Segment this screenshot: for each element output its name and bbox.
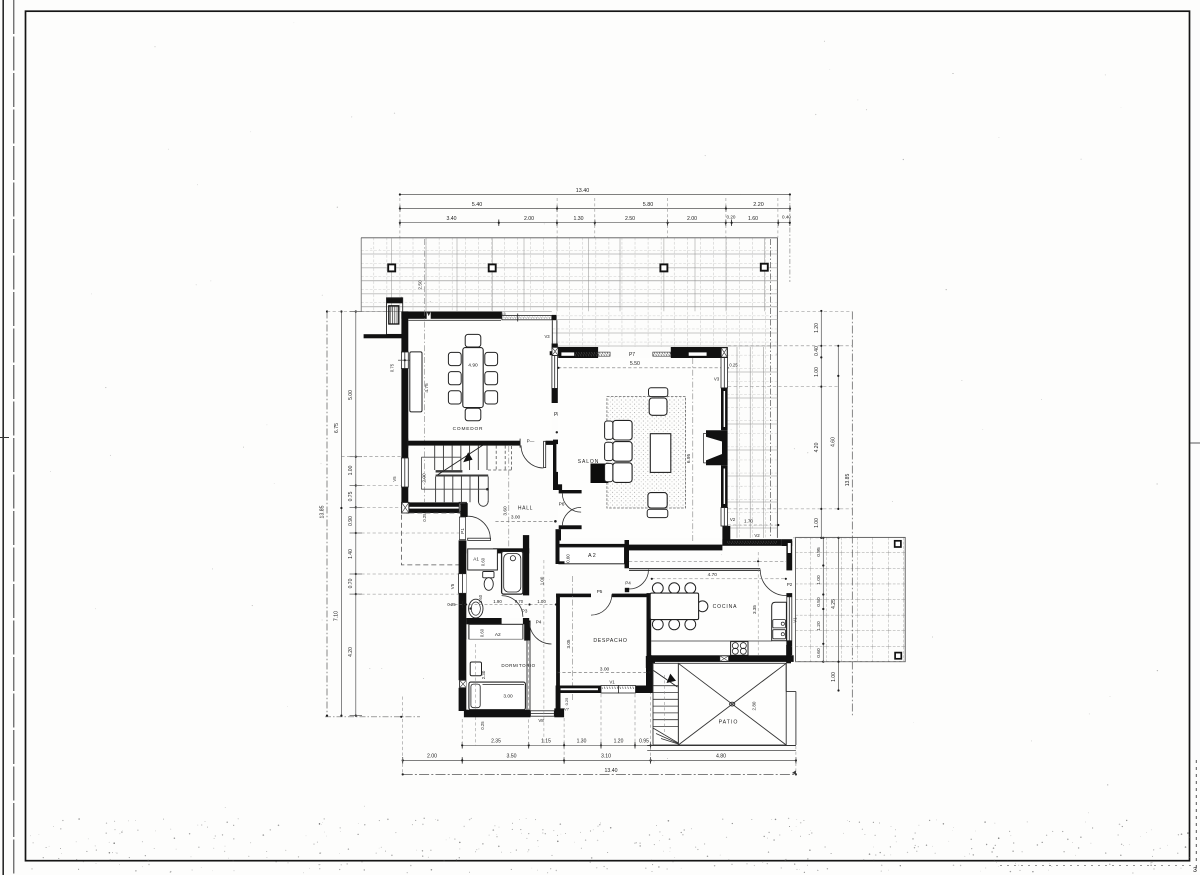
svg-text:13.40: 13.40 (576, 188, 590, 194)
svg-text:V8: V8 (538, 718, 544, 723)
svg-text:V1: V1 (609, 680, 615, 685)
svg-text:2.30: 2.30 (481, 670, 486, 679)
svg-text:4.90: 4.90 (468, 363, 478, 369)
svg-text:1.00: 1.00 (537, 599, 546, 604)
svg-text:0.95: 0.95 (816, 547, 822, 557)
svg-text:DESPACHO: DESPACHO (593, 638, 627, 644)
svg-text:2.00: 2.00 (687, 216, 697, 222)
svg-text:V3: V3 (544, 334, 550, 339)
svg-text:P5: P5 (597, 589, 603, 594)
svg-text:V2: V2 (730, 517, 736, 522)
svg-text:3.35: 3.35 (752, 605, 757, 614)
svg-text:4.75: 4.75 (424, 383, 430, 393)
svg-text:0.25: 0.25 (564, 697, 569, 706)
svg-text:0.75: 0.75 (348, 491, 354, 501)
svg-text:4.25: 4.25 (831, 599, 837, 609)
svg-text:6.75: 6.75 (334, 423, 340, 433)
svg-text:2.00: 2.00 (427, 754, 437, 760)
svg-text:4.20: 4.20 (814, 442, 820, 452)
svg-text:0.75: 0.75 (390, 363, 395, 372)
svg-text:A2: A2 (495, 632, 501, 638)
svg-text:1.30: 1.30 (577, 739, 587, 745)
svg-text:V3: V3 (714, 377, 720, 382)
svg-text:1.00: 1.00 (814, 518, 820, 528)
svg-text:1.40: 1.40 (348, 549, 354, 559)
svg-text:0.25: 0.25 (729, 363, 738, 368)
svg-text:2.35: 2.35 (491, 739, 501, 745)
svg-text:0.60: 0.60 (816, 648, 822, 658)
svg-text:3: 3 (1193, 867, 1197, 874)
svg-text:2.20: 2.20 (753, 202, 764, 208)
svg-text:HALL: HALL (518, 506, 533, 512)
svg-text:3.50: 3.50 (506, 754, 516, 760)
svg-text:1.20: 1.20 (816, 621, 822, 631)
svg-text:V7: V7 (564, 707, 570, 712)
svg-text:0.25: 0.25 (447, 602, 456, 607)
svg-text:0.95: 0.95 (639, 739, 649, 745)
svg-text:1.20: 1.20 (814, 323, 820, 333)
svg-text:A1: A1 (473, 556, 479, 561)
svg-text:2.80: 2.80 (752, 701, 757, 710)
svg-text:P7: P7 (629, 352, 635, 358)
svg-text:P—: P— (527, 439, 535, 444)
svg-text:3.60: 3.60 (503, 506, 509, 516)
svg-text:P2: P2 (787, 582, 793, 587)
svg-text:0.25: 0.25 (480, 721, 485, 730)
svg-text:3.00: 3.00 (503, 693, 513, 699)
svg-text:4.70: 4.70 (708, 572, 718, 578)
svg-text:V2: V2 (754, 533, 760, 538)
svg-text:2.50: 2.50 (625, 216, 635, 222)
svg-text:4.60: 4.60 (831, 437, 837, 447)
svg-text:P6: P6 (559, 502, 565, 508)
svg-text:0.60: 0.60 (479, 628, 484, 637)
svg-text:1.00: 1.00 (348, 465, 354, 475)
svg-text:1.00: 1.00 (831, 672, 837, 682)
svg-text:0.60: 0.60 (481, 557, 486, 566)
svg-text:·: · (952, 71, 954, 77)
svg-text:13.40: 13.40 (605, 768, 618, 774)
svg-text:1.30: 1.30 (573, 216, 583, 222)
svg-text:2.50: 2.50 (418, 280, 424, 290)
svg-text:13.85: 13.85 (320, 505, 326, 518)
svg-text:1.90: 1.90 (493, 599, 502, 604)
svg-text:1.60: 1.60 (478, 594, 483, 603)
svg-text:3.00: 3.00 (600, 666, 610, 672)
svg-text:4.80: 4.80 (716, 754, 726, 760)
svg-text:3.40: 3.40 (446, 216, 456, 222)
svg-text:V5: V5 (450, 583, 455, 589)
svg-text:0.60: 0.60 (565, 554, 570, 563)
svg-text:0.70: 0.70 (348, 578, 354, 588)
svg-text:P3: P3 (522, 609, 528, 615)
svg-text:P1: P1 (460, 528, 465, 534)
svg-text:COCINA: COCINA (713, 604, 738, 610)
svg-text:5.50: 5.50 (630, 361, 640, 367)
svg-text:0.50: 0.50 (816, 597, 822, 607)
svg-text:5.00: 5.00 (348, 390, 354, 400)
svg-text:P4: P4 (536, 620, 542, 625)
svg-text:15: 15 (501, 312, 505, 316)
svg-text:0.25: 0.25 (422, 513, 427, 522)
svg-text:COMEDOR: COMEDOR (453, 426, 484, 432)
svg-text:A2: A2 (588, 553, 597, 559)
svg-text:2.00: 2.00 (524, 216, 534, 222)
svg-text:1.15: 1.15 (541, 739, 551, 745)
svg-text:5.40: 5.40 (472, 202, 483, 208)
svg-text:0.90: 0.90 (348, 516, 354, 526)
svg-text:PATIO: PATIO (719, 720, 739, 726)
svg-text:1.20: 1.20 (614, 739, 624, 745)
svg-text:5.80: 5.80 (643, 202, 654, 208)
svg-text:7.10: 7.10 (334, 611, 340, 621)
svg-text:2.00: 2.00 (422, 473, 428, 483)
svg-text:V1: V1 (793, 617, 798, 623)
svg-text:13.85: 13.85 (845, 474, 851, 487)
svg-text:6.95: 6.95 (686, 454, 692, 464)
svg-text:1.60: 1.60 (748, 216, 758, 222)
svg-text:4.20: 4.20 (348, 647, 354, 657)
svg-text:1.00: 1.00 (814, 367, 820, 377)
svg-text:P4: P4 (625, 581, 631, 586)
svg-text:3.00: 3.00 (511, 515, 521, 521)
svg-text:0.20: 0.20 (727, 215, 736, 220)
svg-text:3.10: 3.10 (601, 754, 611, 760)
svg-text:1.00: 1.00 (816, 575, 822, 585)
svg-text:3.05: 3.05 (566, 639, 571, 648)
svg-text:V5: V5 (392, 476, 397, 482)
svg-text:1.70: 1.70 (744, 519, 753, 524)
svg-text:0.40: 0.40 (814, 346, 820, 356)
svg-text:DORMITORIO: DORMITORIO (501, 663, 535, 668)
